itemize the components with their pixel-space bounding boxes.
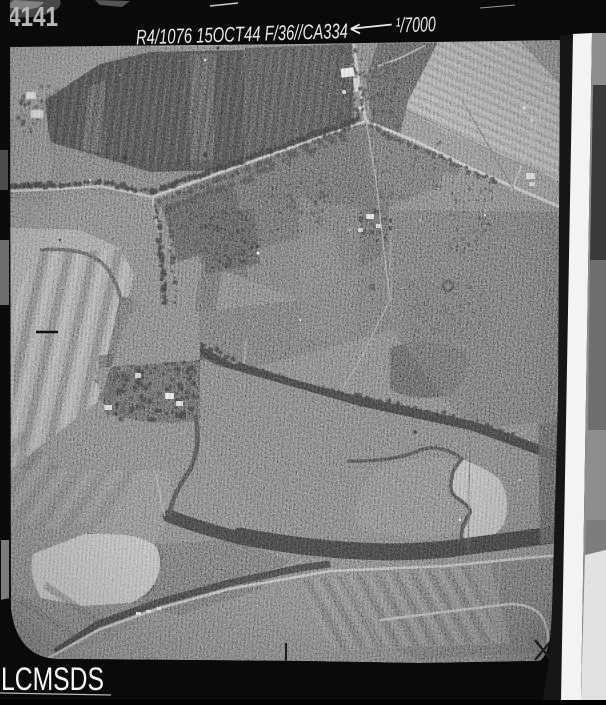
svg-text:¹/7000: ¹/7000 — [395, 13, 436, 37]
svg-text:4141: 4141 — [8, 1, 58, 32]
svg-text:LCMSDS: LCMSDS — [1, 661, 104, 697]
